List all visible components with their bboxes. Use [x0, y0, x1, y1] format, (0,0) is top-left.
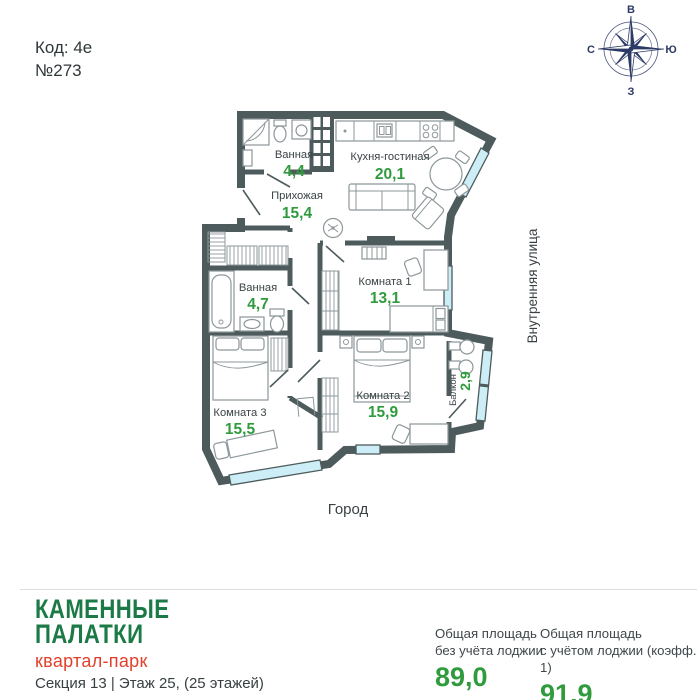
- room-area-bath1: 4,4: [283, 163, 305, 180]
- brand-logo-line2: ПАЛАТКИ: [35, 622, 169, 647]
- sofa: [349, 184, 415, 210]
- room-label-room1: Комната 1: [358, 276, 411, 288]
- closet-rails: [208, 232, 288, 265]
- stat-total-area: Общая площадь без учёта лоджии 89,0: [435, 625, 543, 693]
- kitchen-counter: [336, 121, 454, 141]
- stat-total-area-label-2: без учёта лоджии: [435, 642, 543, 659]
- room-area-hall: 15,4: [282, 205, 313, 222]
- brand-logo-subtitle: квартал-парк: [35, 651, 199, 672]
- stat-loggia-value: 91,9: [540, 679, 700, 700]
- room-area-room2: 15,9: [368, 404, 399, 421]
- room-area-room1: 13,1: [370, 290, 401, 307]
- stat-loggia-label-2: с учётом лоджии (коэфф. 1): [540, 642, 700, 676]
- stat-total-area-value: 89,0: [435, 662, 543, 693]
- room-area-kitchen: 20,1: [375, 166, 406, 183]
- vent-shaft: [310, 113, 334, 172]
- vent-fan-icon: [324, 219, 343, 238]
- street-label-bottom: Город: [328, 501, 369, 518]
- brand-logo: КАМЕННЫЕ ПАЛАТКИ квартал-парк: [35, 597, 199, 672]
- tv: [367, 236, 395, 241]
- room-area-room3: 15,5: [225, 421, 256, 438]
- room-label-hall: Прихожая: [271, 190, 323, 202]
- room3-furniture: [213, 336, 315, 461]
- footer-divider: [20, 589, 697, 590]
- room-label-room2: Комната 2: [356, 390, 409, 402]
- room-label-bath2: Ванная: [239, 282, 277, 294]
- floorplan-card: Код: 4е №273 В С Ю З: [0, 0, 700, 700]
- armchair: [411, 196, 445, 230]
- room-label-kitchen: Кухня-гостиная: [350, 151, 429, 163]
- stat-loggia-label-1: Общая площадь: [540, 625, 700, 642]
- balcony-furniture: [449, 340, 474, 374]
- room-area-balcony: 2,9: [457, 371, 473, 391]
- room-label-room3: Комната 3: [213, 407, 266, 419]
- room-label-bath1: Ванная: [275, 149, 313, 161]
- stat-total-area-label-1: Общая площадь: [435, 625, 543, 642]
- room-area-bath2: 4,7: [247, 296, 269, 313]
- stat-total-area-with-loggia: Общая площадь с учётом лоджии (коэфф. 1)…: [540, 625, 700, 700]
- section-floor-info: Секция 13 | Этаж 25, (25 этажей): [35, 675, 264, 692]
- street-label-right: Внутренняя улица: [525, 228, 540, 343]
